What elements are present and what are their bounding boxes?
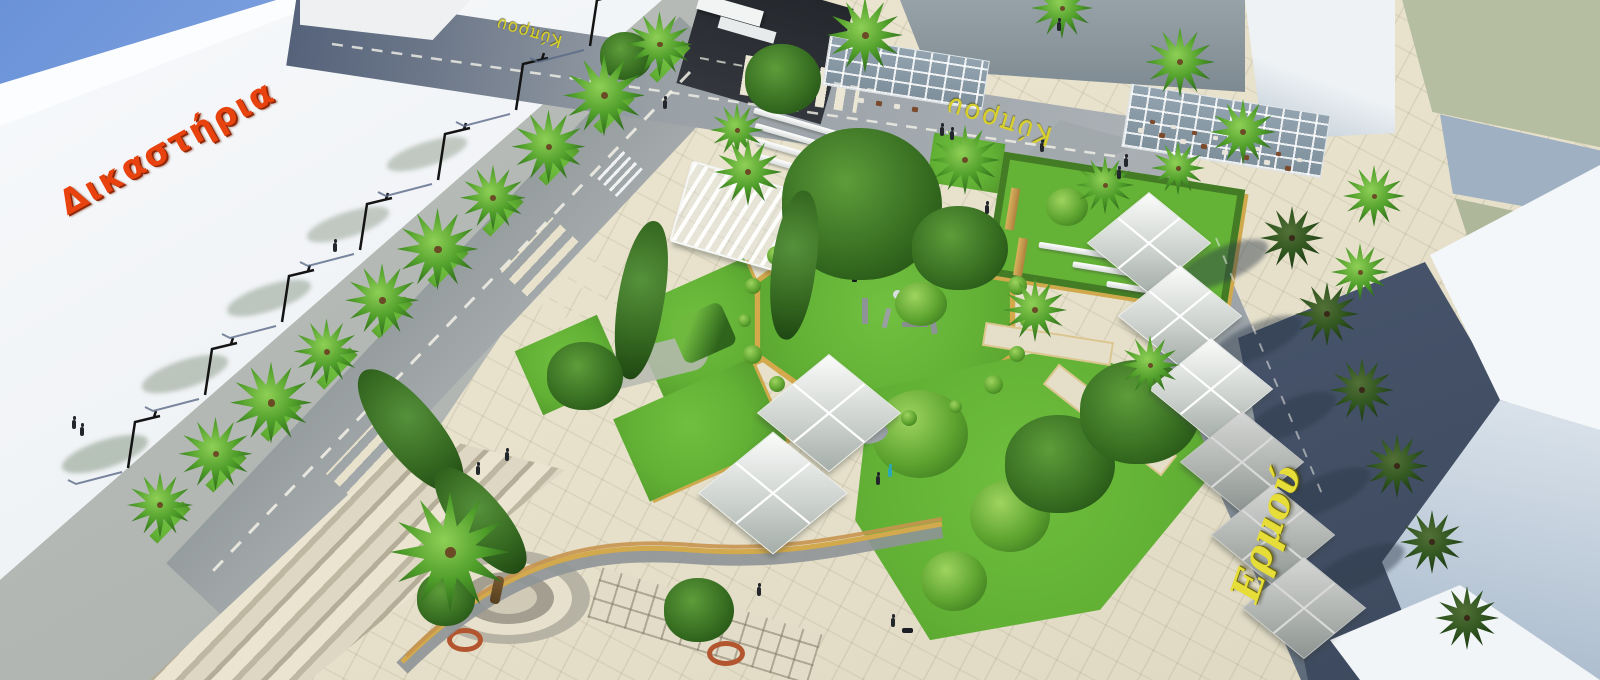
tree <box>745 44 821 114</box>
pedestrian <box>985 205 989 214</box>
pedestrian <box>891 618 895 627</box>
dog <box>902 628 913 633</box>
pedestrian <box>80 427 84 436</box>
spiral-planter-ring <box>479 581 537 614</box>
tree-planter-ring <box>707 641 745 666</box>
cafe-chair <box>1222 149 1229 155</box>
pedestrian <box>940 127 944 136</box>
pedestrian <box>1117 170 1121 179</box>
cafe-chair <box>876 101 883 107</box>
pedestrian <box>72 420 76 429</box>
round-bush <box>743 345 762 364</box>
tree-planter-ring <box>447 628 483 652</box>
pedestrian <box>663 100 667 109</box>
round-bush <box>738 314 751 327</box>
round-bush <box>769 376 785 392</box>
cafe-chair <box>1138 128 1145 134</box>
pedestrian <box>757 587 761 596</box>
cafe-chair <box>1297 157 1303 162</box>
cafe-chair <box>1180 138 1187 144</box>
cafe-chair <box>894 104 901 110</box>
tree <box>664 578 734 642</box>
cafe-chair <box>1201 144 1208 150</box>
aerial-render-scene: Δικαστήρια Κύπρου Κύπρου Ερμού <box>0 0 1600 680</box>
cafe-chair <box>858 98 865 104</box>
cafe-chair <box>1213 136 1219 141</box>
round-bush <box>921 551 987 611</box>
pedestrian <box>876 476 880 485</box>
pedestrian <box>1057 22 1061 31</box>
palm-tree <box>1260 206 1324 270</box>
cafe-chair <box>1150 120 1156 125</box>
palm-tree <box>1343 165 1405 227</box>
tree <box>547 342 623 410</box>
round-bush <box>895 282 947 326</box>
topiary-bush <box>1046 188 1088 226</box>
pedestrian <box>888 468 892 477</box>
cafe-chair <box>1285 165 1292 171</box>
pedestrian <box>950 131 954 140</box>
monument-fragment <box>862 298 868 324</box>
round-bush <box>745 278 761 294</box>
cafe-chair <box>1192 130 1198 135</box>
pedestrian <box>333 243 337 252</box>
pedestrian <box>476 466 480 475</box>
round-bush <box>984 375 1003 394</box>
pedestrian <box>1124 158 1128 167</box>
round-bush <box>949 400 962 413</box>
tree <box>912 206 1008 290</box>
cafe-chair <box>912 107 919 113</box>
pedestrian <box>505 452 509 461</box>
